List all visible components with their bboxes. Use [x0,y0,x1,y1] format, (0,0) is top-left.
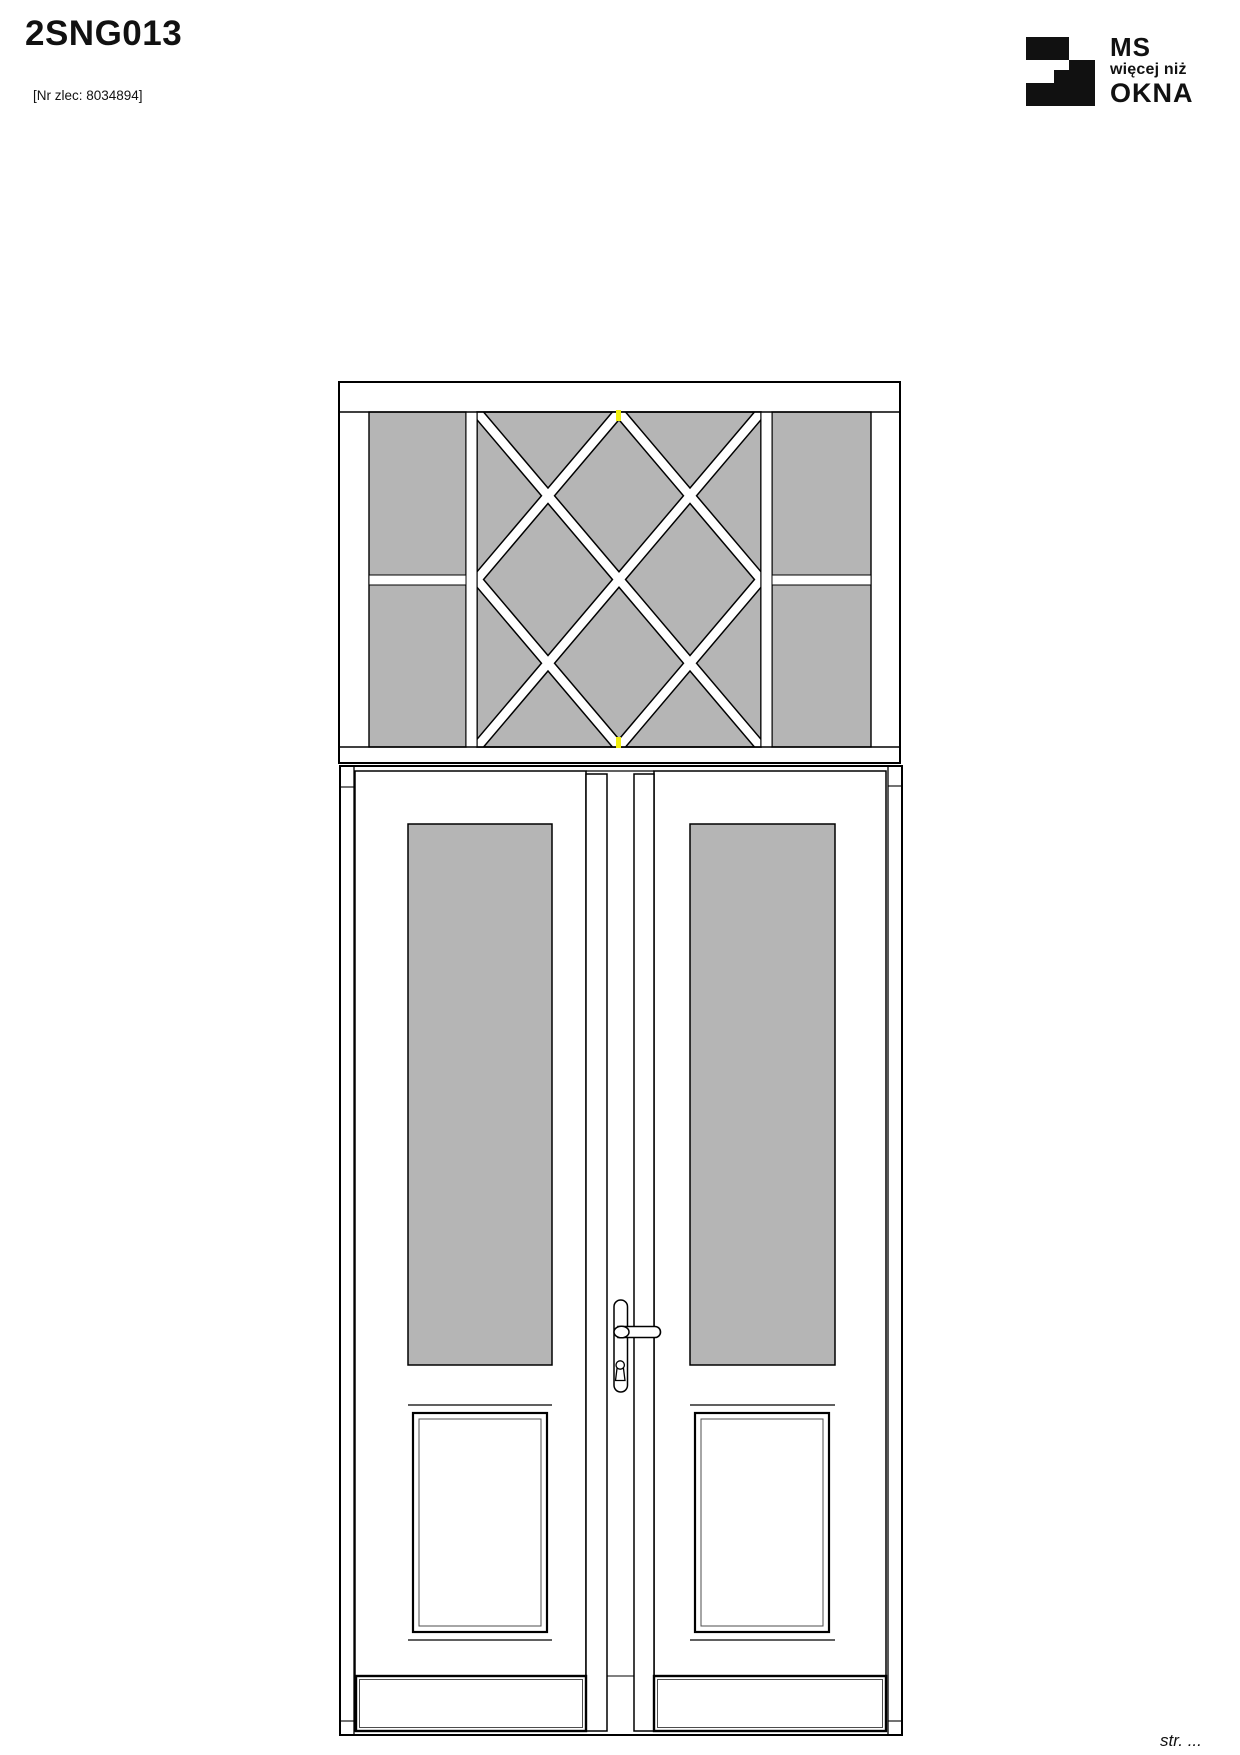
meeting-stile-right [634,774,654,1731]
meeting-stile-left [586,774,607,1731]
kick-plate-right [654,1676,886,1731]
kick-plate-left [356,1676,586,1731]
drawing-sheet: 2SNG013 [Nr zlec: 8034894] MS więcej niż… [0,0,1240,1755]
mullion-left-vertical [466,412,477,747]
mullion-right-vertical [761,412,772,747]
muntin-left-horizontal [369,575,466,585]
double-door [340,766,902,1735]
keyhole-icon [616,1369,626,1381]
joint-marker-top [616,410,621,421]
door-glass-right [690,824,835,1365]
transom-window [339,382,900,763]
door-panel-right [695,1413,829,1632]
joint-marker-bottom [616,737,621,748]
page-number-label: str. ... [1160,1731,1202,1751]
muntin-right-horizontal [772,575,871,585]
technical-drawing [0,0,1240,1755]
door-panel-left [413,1413,547,1632]
handle-hub [614,1326,629,1338]
keyhole-cylinder [616,1361,624,1369]
door-glass-left [408,824,552,1365]
